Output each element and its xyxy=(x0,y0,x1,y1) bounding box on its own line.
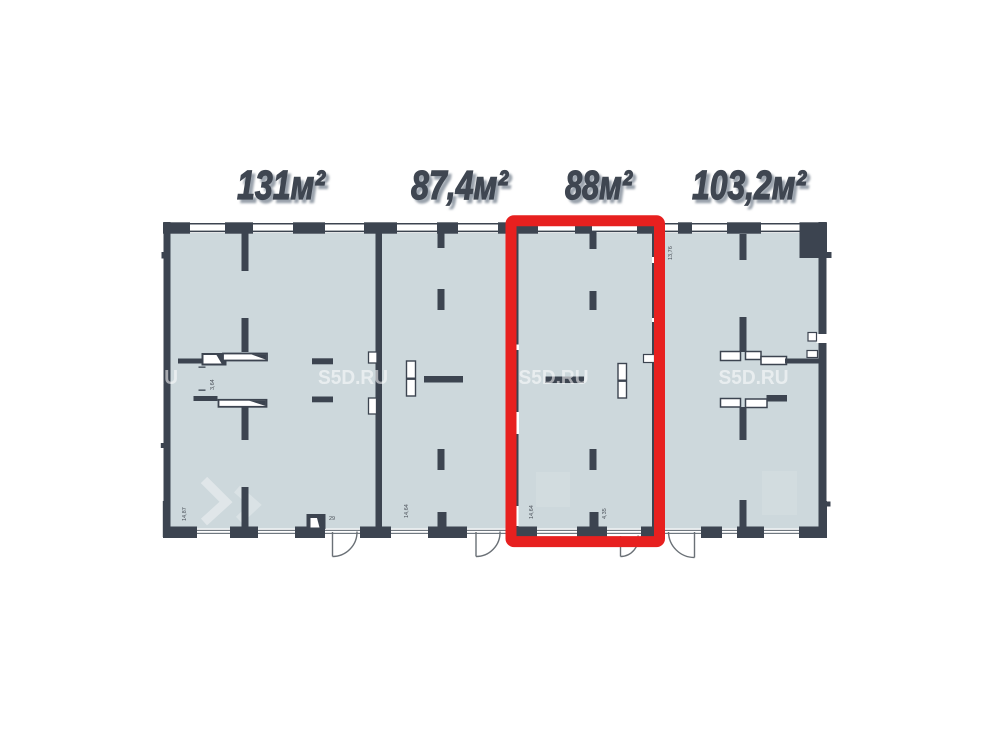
svg-text:S5D.RU: S5D.RU xyxy=(719,366,789,389)
svg-text:14,64: 14,64 xyxy=(529,505,535,519)
svg-text:87,4м²: 87,4м² xyxy=(411,162,509,208)
svg-text:103,2м²: 103,2м² xyxy=(692,162,807,208)
svg-text:14,87: 14,87 xyxy=(182,507,188,521)
svg-text:S5D.RU: S5D.RU xyxy=(519,366,589,389)
svg-text:4,35: 4,35 xyxy=(602,508,608,519)
svg-text:14,64: 14,64 xyxy=(404,504,410,518)
svg-text:88м²: 88м² xyxy=(565,162,633,208)
svg-text:S5D.RU: S5D.RU xyxy=(318,366,388,389)
svg-text:29: 29 xyxy=(329,516,335,522)
svg-text:S5D.RU: S5D.RU xyxy=(108,366,178,389)
svg-text:131м²: 131м² xyxy=(237,162,326,208)
svg-text:13,76: 13,76 xyxy=(668,246,674,260)
svg-text:3,64: 3,64 xyxy=(210,379,216,390)
